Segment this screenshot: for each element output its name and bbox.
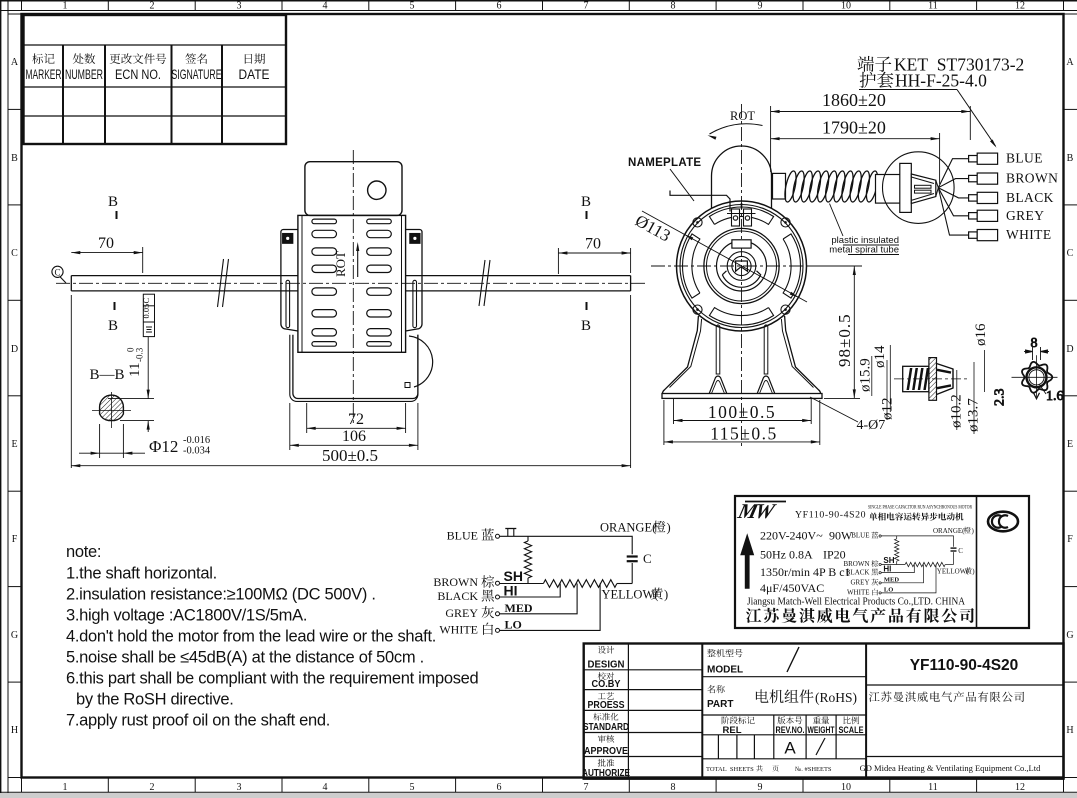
svg-text:A: A xyxy=(784,739,796,758)
svg-text:1.the shaft horizontal.: 1.the shaft horizontal. xyxy=(66,565,217,583)
svg-text:1: 1 xyxy=(63,1,68,12)
svg-text:C: C xyxy=(958,547,963,555)
svg-text:YELLOW(: YELLOW( xyxy=(602,588,659,602)
svg-text:B: B xyxy=(581,318,591,334)
svg-text:MED: MED xyxy=(884,577,899,584)
svg-text:5.noise shall be ≤45dB(A) at t: 5.noise shall be ≤45dB(A) at the distanc… xyxy=(66,649,424,667)
svg-text:D: D xyxy=(11,344,18,355)
svg-text:HI: HI xyxy=(883,565,891,574)
svg-text:1860±20: 1860±20 xyxy=(822,90,886,110)
svg-text:4.don't hold the motor from th: 4.don't hold the motor from the lead wir… xyxy=(66,628,436,646)
svg-text:106: 106 xyxy=(342,428,366,445)
svg-text:PART: PART xyxy=(707,699,733,710)
svg-text:1350r/min: 1350r/min xyxy=(760,565,810,579)
svg-text:STANDARD: STANDARD xyxy=(583,721,629,733)
svg-text:WHITE: WHITE xyxy=(439,622,478,636)
svg-text:10: 10 xyxy=(841,782,851,793)
svg-text:ø10.2: ø10.2 xyxy=(949,394,965,428)
svg-text:8: 8 xyxy=(671,1,676,12)
svg-text:-0.034: -0.034 xyxy=(183,446,211,457)
svg-text:9: 9 xyxy=(758,782,763,793)
svg-text:BROWN: BROWN xyxy=(843,560,869,568)
svg-text:WHITE: WHITE xyxy=(847,589,870,597)
svg-text:B—B: B—B xyxy=(89,367,124,383)
svg-text:ROT: ROT xyxy=(730,109,755,123)
svg-text:F: F xyxy=(12,534,18,545)
svg-text:-0.016: -0.016 xyxy=(183,435,210,446)
svg-text:HI: HI xyxy=(504,583,518,599)
svg-text:by the RoSH directive.: by the RoSH directive. xyxy=(76,691,234,709)
svg-text:ROT: ROT xyxy=(333,251,348,277)
svg-text:220V-240V~: 220V-240V~ xyxy=(760,529,823,543)
svg-text:90W: 90W xyxy=(829,529,853,543)
svg-text:APPROVE: APPROVE xyxy=(584,745,628,757)
svg-text:AUTHORIZE: AUTHORIZE xyxy=(582,767,630,779)
svg-text:E: E xyxy=(11,439,17,450)
svg-text:LO: LO xyxy=(505,617,522,631)
svg-text:1.6: 1.6 xyxy=(1046,389,1064,404)
svg-text:GREY: GREY xyxy=(445,606,478,620)
svg-text:72: 72 xyxy=(348,411,364,428)
svg-text:3.high voltage :AC1800V/1S/5mA: 3.high voltage :AC1800V/1S/5mA. xyxy=(66,607,307,625)
svg-text:11: 11 xyxy=(928,1,938,12)
svg-text:ORANGE(: ORANGE( xyxy=(600,521,656,535)
svg-text:4μF/450VAC: 4μF/450VAC xyxy=(760,581,824,595)
svg-text:BROWN: BROWN xyxy=(433,575,478,589)
svg-text:5: 5 xyxy=(410,1,415,12)
svg-text:11: 11 xyxy=(127,363,143,377)
svg-text:11: 11 xyxy=(928,782,938,793)
svg-text:2.3: 2.3 xyxy=(993,389,1008,407)
svg-text:SIGNATURE: SIGNATURE xyxy=(172,67,222,82)
svg-text:C: C xyxy=(1067,248,1074,259)
svg-text:SINGLE PHASE CAPACITOR RUN ASY: SINGLE PHASE CAPACITOR RUN ASYNCHRONOUS … xyxy=(868,505,972,511)
svg-text:REV.NO.: REV.NO. xyxy=(776,725,805,736)
svg-text:3: 3 xyxy=(237,782,242,793)
svg-text:B: B xyxy=(11,153,18,164)
svg-text:ø14: ø14 xyxy=(872,345,888,368)
svg-text:MARKER: MARKER xyxy=(26,67,62,82)
svg-text:NUMBER: NUMBER xyxy=(65,67,103,82)
svg-text:GREY: GREY xyxy=(850,579,869,587)
svg-text:C: C xyxy=(54,268,60,278)
svg-text:GREY: GREY xyxy=(1006,208,1044,223)
svg-text:0.05: 0.05 xyxy=(141,304,151,319)
svg-text:BLUE: BLUE xyxy=(1006,151,1043,166)
svg-text:2: 2 xyxy=(150,1,155,12)
svg-text:H: H xyxy=(1066,725,1073,736)
svg-text:Φ12: Φ12 xyxy=(149,437,178,456)
svg-text:C: C xyxy=(643,551,652,566)
svg-text:12: 12 xyxy=(1015,782,1025,793)
svg-text:E: E xyxy=(1067,439,1073,450)
svg-text:4: 4 xyxy=(323,1,328,12)
svg-text:CO.BY: CO.BY xyxy=(592,678,621,690)
svg-text:100±0.5: 100±0.5 xyxy=(708,402,776,422)
svg-text:500±0.5: 500±0.5 xyxy=(322,446,378,465)
svg-text:ORANGE(: ORANGE( xyxy=(933,527,965,535)
svg-text:Jiangsu Match-Well Electrical: Jiangsu Match-Well Electrical Products C… xyxy=(747,597,966,608)
svg-text:YF110-90-4S20: YF110-90-4S20 xyxy=(910,657,1019,674)
svg-text:12: 12 xyxy=(1015,1,1025,12)
svg-text:YELLOW(: YELLOW( xyxy=(937,568,970,576)
svg-text:HH-F-25-4.0: HH-F-25-4.0 xyxy=(895,71,987,91)
svg-text:ø12: ø12 xyxy=(880,398,896,421)
svg-text:G: G xyxy=(1066,630,1073,641)
svg-text:YF110-90-4S20: YF110-90-4S20 xyxy=(795,510,866,521)
svg-text:8: 8 xyxy=(671,782,676,793)
svg-text:3: 3 xyxy=(237,1,242,12)
svg-text:MODEL: MODEL xyxy=(707,665,743,676)
svg-text:B: B xyxy=(581,194,591,210)
svg-text:WEIGHT: WEIGHT xyxy=(808,725,835,736)
svg-text:6: 6 xyxy=(497,1,502,12)
svg-text:9: 9 xyxy=(758,1,763,12)
svg-text:7.apply rust proof oil on the: 7.apply rust proof oil on the shaft end. xyxy=(66,712,330,730)
svg-text:ø16: ø16 xyxy=(973,323,989,346)
svg-text:ECN NO.: ECN NO. xyxy=(115,67,161,82)
svg-text:A: A xyxy=(1066,57,1074,68)
svg-text:H: H xyxy=(11,725,18,736)
svg-text:6: 6 xyxy=(497,782,502,793)
svg-text:): ) xyxy=(664,588,668,602)
svg-text:B: B xyxy=(108,318,118,334)
svg-text:6.this part shall be compliant: 6.this part shall be compliant with the … xyxy=(66,670,479,688)
svg-text:C: C xyxy=(141,298,151,304)
svg-text:ø13.7: ø13.7 xyxy=(966,398,982,432)
svg-text:C: C xyxy=(11,248,18,259)
svg-text:): ) xyxy=(667,521,671,535)
svg-text:4: 4 xyxy=(323,782,328,793)
svg-text:BLACK: BLACK xyxy=(437,589,478,603)
svg-text:F: F xyxy=(1067,534,1073,545)
svg-text:NAMEPLATE: NAMEPLATE xyxy=(628,157,701,169)
svg-text:2.insulation resistance:≥100MΩ: 2.insulation resistance:≥100MΩ (DC 500V)… xyxy=(66,586,376,604)
svg-text:10: 10 xyxy=(841,1,851,12)
svg-text:G: G xyxy=(11,630,18,641)
svg-text:115±0.5: 115±0.5 xyxy=(710,423,778,443)
svg-text:50Hz 0.8A: 50Hz 0.8A xyxy=(760,548,813,562)
svg-text:BROWN: BROWN xyxy=(1006,171,1058,186)
svg-text:№. #SHEETS: №. #SHEETS xyxy=(795,766,832,773)
svg-text:(RoHS): (RoHS) xyxy=(815,690,857,705)
svg-text:BLUE: BLUE xyxy=(851,532,869,540)
svg-text:SCALE: SCALE xyxy=(839,725,864,736)
svg-text:LO: LO xyxy=(884,587,893,594)
svg-text:1: 1 xyxy=(63,782,68,793)
svg-text:MED: MED xyxy=(505,601,533,615)
svg-text:note:: note: xyxy=(66,543,101,561)
svg-text:WHITE: WHITE xyxy=(1006,227,1051,242)
svg-text:PROESS: PROESS xyxy=(588,699,625,711)
svg-text:GD Midea Heating & Ventilating: GD Midea Heating & Ventilating Equipment… xyxy=(860,763,1041,773)
svg-text:D: D xyxy=(1066,344,1073,355)
svg-text:BLACK: BLACK xyxy=(846,568,870,576)
svg-text:-0.3: -0.3 xyxy=(135,347,145,362)
svg-text:metal spiral tube: metal spiral tube xyxy=(829,245,899,256)
svg-text:5: 5 xyxy=(410,782,415,793)
svg-text:SH: SH xyxy=(883,556,894,565)
svg-text:A: A xyxy=(11,57,19,68)
svg-text:7: 7 xyxy=(584,1,589,12)
svg-text:1790±20: 1790±20 xyxy=(822,118,886,138)
svg-text:2: 2 xyxy=(150,782,155,793)
svg-text:70: 70 xyxy=(98,235,114,252)
svg-text:8: 8 xyxy=(1031,336,1038,351)
svg-text:BLUE: BLUE xyxy=(447,528,478,542)
svg-text:TOTAL SHEETS: TOTAL SHEETS xyxy=(706,766,754,773)
svg-text:7: 7 xyxy=(584,782,589,793)
svg-text:98±0.5: 98±0.5 xyxy=(835,313,854,367)
svg-text:BLACK: BLACK xyxy=(1006,190,1054,205)
svg-text:DESIGN: DESIGN xyxy=(588,658,625,670)
svg-text:REL: REL xyxy=(723,725,742,736)
svg-text:B: B xyxy=(1067,153,1074,164)
svg-text:DATE: DATE xyxy=(239,67,270,82)
svg-text:B: B xyxy=(108,194,118,210)
svg-text:IP20: IP20 xyxy=(823,548,846,562)
svg-text:70: 70 xyxy=(585,235,601,252)
